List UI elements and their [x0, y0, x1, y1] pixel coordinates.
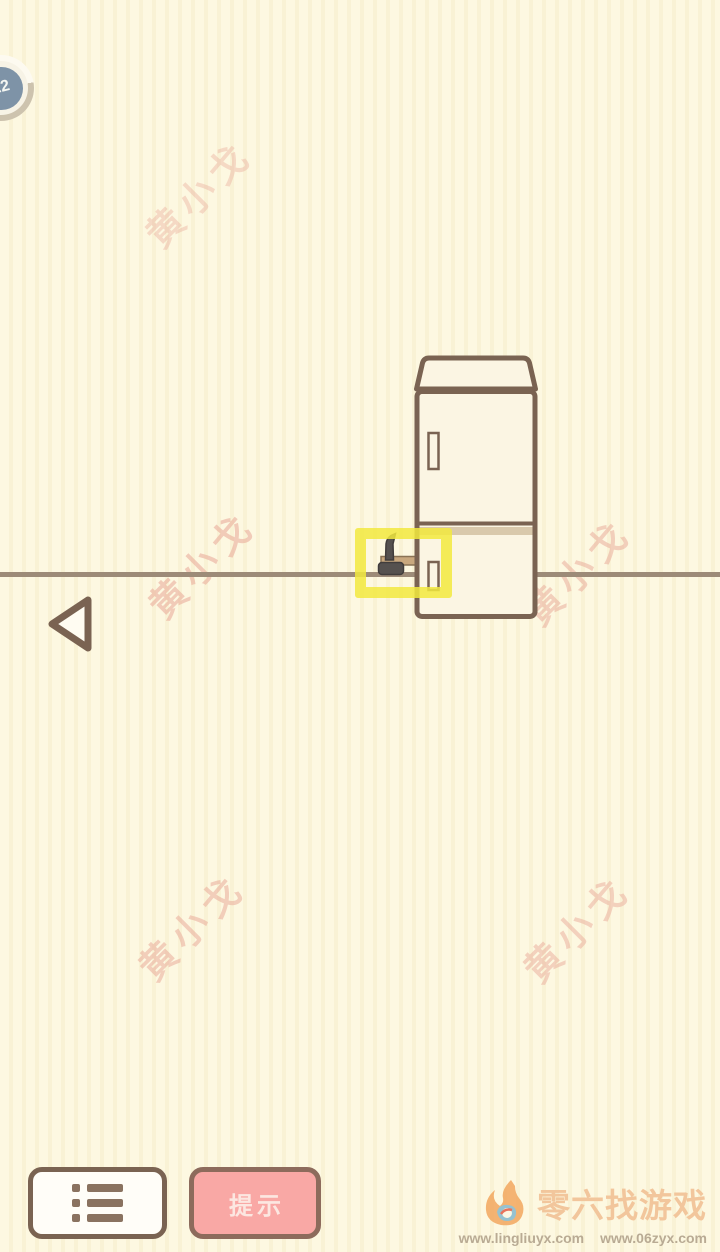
game-screen: 黄小戈 黄小戈 黄小戈 黄小戈 黄小戈 22	[0, 0, 720, 1252]
hint-button[interactable]: 提示	[189, 1167, 321, 1239]
brand-url: www.06zyx.com	[600, 1230, 707, 1246]
level-badge-core: 22	[0, 67, 23, 110]
watermark-text: 黄小戈	[131, 126, 263, 258]
back-button[interactable]	[42, 592, 98, 656]
watermark-text: 黄小戈	[124, 859, 256, 991]
level-badge[interactable]: 22	[0, 55, 34, 121]
site-branding: 零六找游戏 www.lingliuyx.com www.06zyx.com	[459, 1178, 707, 1246]
fridge-top-lid	[417, 358, 536, 389]
watermark-text: 黄小戈	[134, 497, 266, 629]
flame-logo-icon	[481, 1178, 529, 1228]
brand-url: www.lingliuyx.com	[459, 1230, 585, 1246]
logo-text: 零六找游戏	[537, 1179, 707, 1227]
level-badge-ring: 22	[0, 61, 28, 115]
fridge-upper-door-handle[interactable]	[429, 433, 439, 469]
level-number: 22	[0, 77, 12, 99]
watermark-text: 黄小戈	[509, 861, 641, 993]
menu-button[interactable]	[28, 1167, 167, 1239]
back-arrow-icon	[52, 600, 88, 648]
hint-highlight-box[interactable]	[355, 528, 452, 598]
list-menu-icon	[72, 1184, 123, 1222]
